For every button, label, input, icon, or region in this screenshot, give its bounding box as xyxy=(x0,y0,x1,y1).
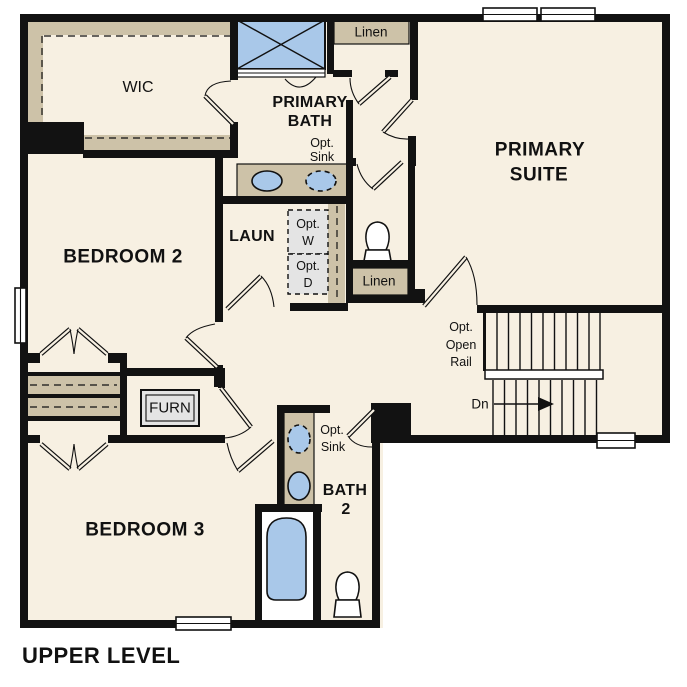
sink-icon xyxy=(252,171,282,191)
shower-icon xyxy=(237,20,325,87)
label-bath2-opt-sink-1: Opt. xyxy=(320,424,344,437)
toilet-icon xyxy=(364,222,391,261)
plan-title: UPPER LEVEL xyxy=(22,643,180,669)
room-label-primary-bath-2: BATH xyxy=(288,114,332,130)
room-label-bedroom-3: BEDROOM 3 xyxy=(85,521,205,540)
closet-shelves xyxy=(27,372,120,421)
label-stairs-down: Dn xyxy=(471,397,488,411)
room-label-laundry: LAUN xyxy=(229,229,275,245)
room-label-primary-bath-1: PRIMARY xyxy=(272,95,347,111)
label-opt-open-rail-2: Open xyxy=(446,339,477,352)
label-opt-washer-1: Opt. xyxy=(296,218,320,231)
optional-sink-icon xyxy=(306,171,336,191)
label-bath2-opt-sink-2: Sink xyxy=(321,441,345,454)
room-label-bath-2-1: BATH xyxy=(323,483,367,499)
toilet-icon xyxy=(334,572,361,617)
room-label-primary-suite-2: SUITE xyxy=(510,166,568,185)
label-opt-dryer-2: D xyxy=(303,277,312,290)
label-opt-open-rail-1: Opt. xyxy=(449,321,473,334)
tub-icon xyxy=(262,512,313,621)
sink-icon xyxy=(288,472,310,500)
room-label-wic: WIC xyxy=(122,80,153,96)
label-opt-sink-2: Sink xyxy=(310,151,334,164)
room-label-bath-2-2: 2 xyxy=(341,502,350,518)
bath2-vanity xyxy=(284,410,314,510)
label-opt-washer-2: W xyxy=(302,235,314,248)
label-opt-sink-1: Opt. xyxy=(310,137,334,150)
floor-plan: WIC PRIMARY BATH Opt. Sink Linen PRIMARY… xyxy=(0,0,687,687)
label-furnace: FURN xyxy=(149,401,191,416)
laundry-counter xyxy=(328,202,345,305)
room-label-bedroom-2: BEDROOM 2 xyxy=(63,248,183,267)
optional-sink-icon xyxy=(288,425,310,453)
label-linen-top: Linen xyxy=(354,25,387,39)
label-linen-mid: Linen xyxy=(362,274,395,288)
room-label-primary-suite-1: PRIMARY xyxy=(495,141,585,160)
primary-vanity xyxy=(237,164,347,198)
label-opt-open-rail-3: Rail xyxy=(450,356,472,369)
label-opt-dryer-1: Opt. xyxy=(296,260,320,273)
